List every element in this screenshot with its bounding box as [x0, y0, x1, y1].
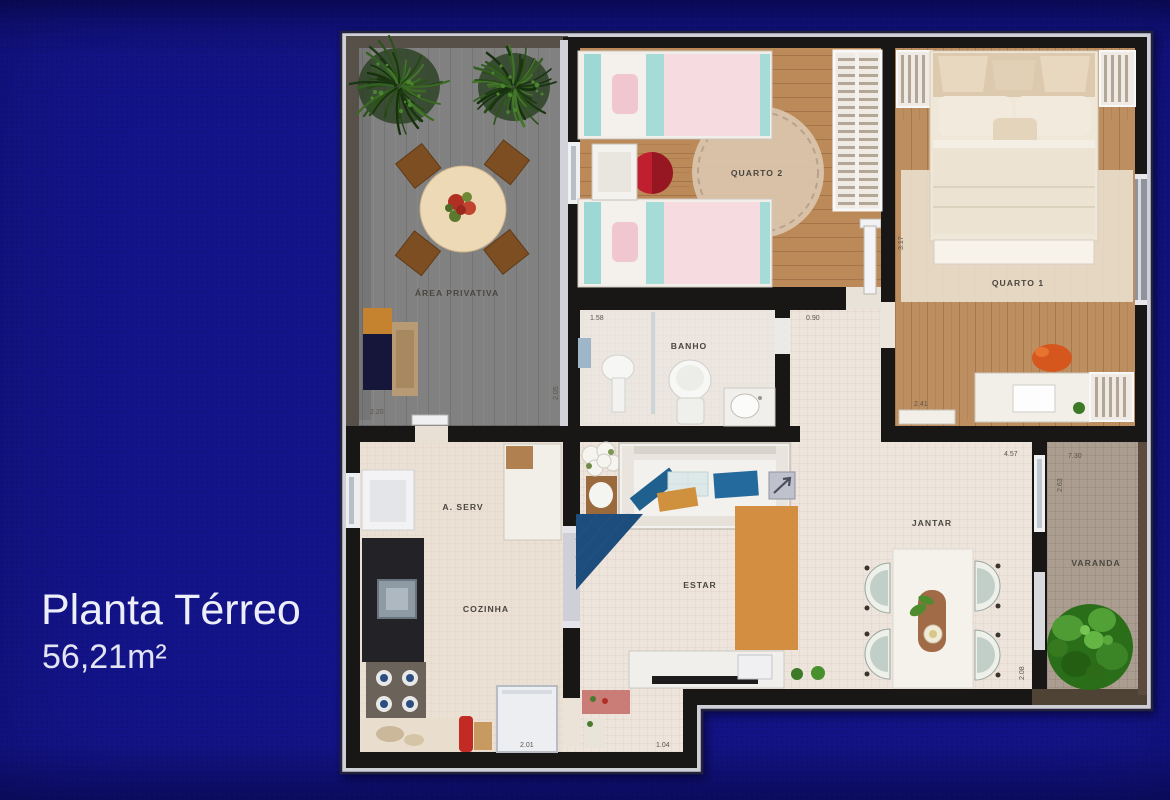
svg-text:0.90: 0.90	[806, 315, 820, 322]
svg-text:4.57: 4.57	[1004, 451, 1018, 458]
svg-text:A. SERV: A. SERV	[442, 502, 483, 512]
svg-text:2.41: 2.41	[914, 401, 928, 408]
svg-text:3.17: 3.17	[898, 236, 905, 250]
svg-text:ÁREA PRIVATIVA: ÁREA PRIVATIVA	[415, 288, 499, 298]
svg-text:1.04: 1.04	[656, 742, 670, 749]
svg-text:QUARTO 2: QUARTO 2	[731, 168, 783, 178]
svg-text:2.05: 2.05	[553, 386, 560, 400]
svg-text:2.01: 2.01	[520, 742, 534, 749]
svg-text:ESTAR: ESTAR	[683, 580, 717, 590]
svg-text:2.20: 2.20	[370, 409, 384, 416]
svg-text:2.63: 2.63	[1057, 478, 1064, 492]
svg-text:JANTAR: JANTAR	[912, 518, 952, 528]
svg-text:BANHO: BANHO	[671, 341, 708, 351]
svg-text:VARANDA: VARANDA	[1071, 558, 1120, 568]
svg-text:1.58: 1.58	[590, 315, 604, 322]
svg-text:7.30: 7.30	[1068, 453, 1082, 460]
svg-text:COZINHA: COZINHA	[463, 604, 509, 614]
svg-text:2.08: 2.08	[1019, 666, 1026, 680]
svg-text:QUARTO 1: QUARTO 1	[992, 278, 1044, 288]
